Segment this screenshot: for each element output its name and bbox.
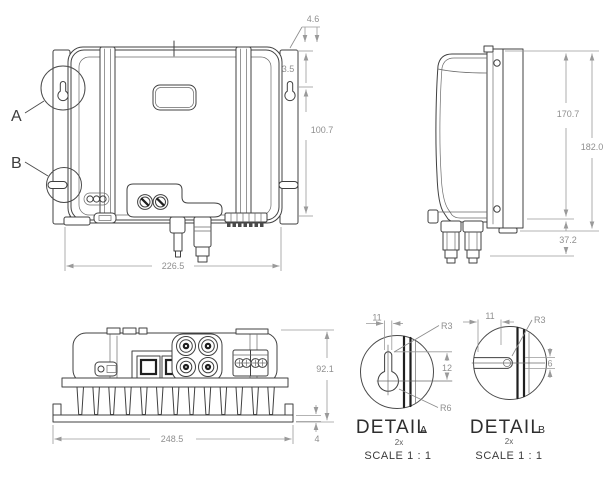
- terminal-block: [233, 350, 268, 376]
- bracket-screw-hole: [494, 60, 500, 66]
- detail-a-caption: DETAIL A 2x SCALE 1 : 1: [356, 417, 432, 462]
- bottom-latch: [95, 362, 117, 376]
- dim-text: 182.0: [581, 142, 604, 152]
- dim-front-width: 226.5: [65, 227, 281, 271]
- detail-a-view: 11 R3 12 R6 DETAIL A 2x SCALE 1 : 1: [356, 313, 453, 463]
- dim-text: 6: [547, 359, 552, 369]
- callout-a: A: [11, 101, 44, 125]
- detail-a-title: DETAIL: [356, 417, 428, 438]
- detail-b-letter: B: [538, 424, 545, 436]
- dim-text: 11: [372, 313, 381, 323]
- wall-bracket: [484, 46, 523, 233]
- dim-detail-b-slot-width: 11: [463, 311, 514, 352]
- round-port-block: [172, 334, 222, 381]
- dim-text: 11: [485, 311, 494, 321]
- dim-text: 37.2: [559, 235, 577, 245]
- dim-text: 3.5: [282, 64, 295, 74]
- side-view: 170.7 182.0 37.2: [428, 46, 603, 263]
- detail-a-letter: A: [420, 424, 427, 436]
- dim-text: 4.6: [307, 14, 320, 24]
- detail-b-title: DETAIL: [470, 417, 542, 438]
- dim-text: 4: [314, 434, 319, 444]
- slot-mount-bottom-left: [48, 182, 67, 189]
- bracket-screw-hole: [494, 206, 500, 212]
- dim-bottom-flange: 4: [296, 405, 321, 444]
- heatsink-fins: [77, 387, 274, 415]
- callout-b-label: B: [11, 155, 22, 172]
- dim-text: 226.5: [162, 261, 185, 271]
- dim-front-hole-offset: 4.6: [290, 14, 320, 48]
- callout-a-label: A: [11, 108, 22, 125]
- dim-text: 100.7: [311, 125, 334, 135]
- dim-side-total-height: 182.0: [520, 54, 603, 232]
- detail-a-qty: 2x: [395, 438, 403, 447]
- dim-detail-a-radius-bottom: R6: [399, 389, 452, 413]
- front-view: A B 4.6 3.5 100.7: [11, 14, 333, 271]
- device-body-side: [428, 54, 487, 223]
- dim-text: 170.7: [557, 109, 580, 119]
- callout-b: B: [11, 155, 48, 176]
- detail-b-scale: SCALE 1 : 1: [475, 450, 542, 462]
- dim-detail-a-slot-length: 12: [394, 352, 452, 380]
- drawing-page: A B 4.6 3.5 100.7: [0, 0, 608, 486]
- detail-b-view: 11 R3 6 DETAIL B 2x SCALE 1 : 1: [463, 311, 555, 462]
- bottom-view: 248.5 92.1 4: [53, 328, 334, 444]
- dim-text: R3: [441, 321, 453, 331]
- detail-a-boundary: [361, 336, 434, 409]
- heatsink: [53, 378, 293, 422]
- dim-text: R6: [440, 403, 452, 413]
- dim-detail-a-slot-width: 11: [366, 313, 403, 351]
- dim-bottom-base-width: 248.5: [53, 425, 293, 444]
- dim-text: 92.1: [316, 364, 334, 374]
- dim-text: 248.5: [161, 434, 184, 444]
- drawing-canvas: A B 4.6 3.5 100.7: [0, 0, 608, 486]
- dim-text: R3: [534, 315, 546, 325]
- bottom-cables: [170, 217, 211, 262]
- detail-a-scale: SCALE 1 : 1: [364, 450, 431, 462]
- side-connectors: [441, 221, 483, 263]
- slot-mount-bottom-right: [279, 182, 298, 189]
- dim-text: 12: [442, 363, 452, 373]
- terminal-pins: [225, 213, 267, 227]
- detail-b-qty: 2x: [505, 437, 513, 446]
- detail-b-caption: DETAIL B 2x SCALE 1 : 1: [470, 417, 545, 462]
- dim-front-hole-height: 100.7: [297, 87, 333, 216]
- label-recess: [153, 85, 196, 110]
